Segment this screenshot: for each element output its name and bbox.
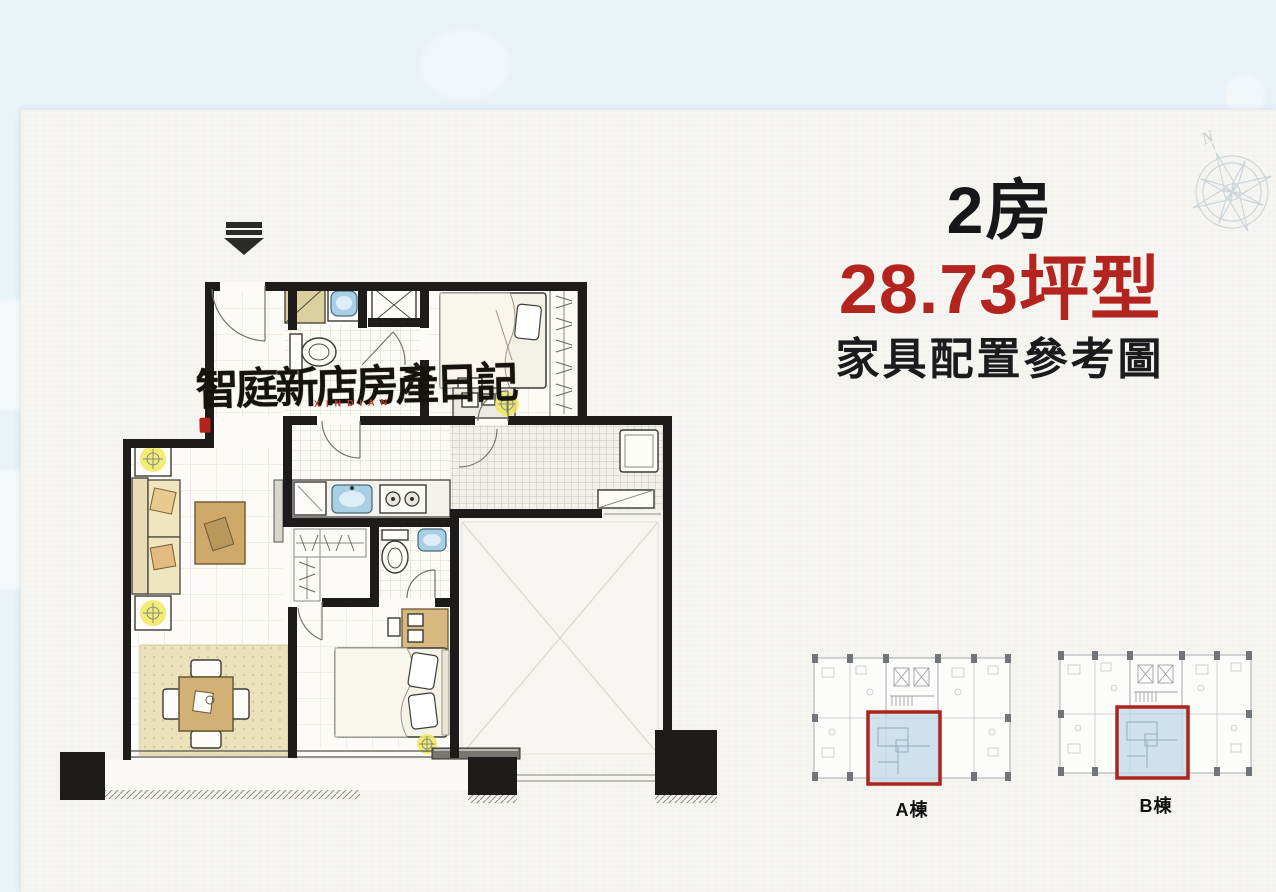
- dining-chair: [191, 731, 221, 748]
- column: [60, 752, 105, 800]
- dining-chair: [232, 689, 249, 719]
- key-plan-building-a: A棟: [806, 652, 1018, 822]
- subtitle: 家具配置參考圖: [780, 337, 1220, 383]
- compass-rose: N: [1186, 126, 1276, 252]
- desk-item: [408, 614, 423, 626]
- tv-console: [274, 480, 283, 542]
- highlighted-unit: [868, 712, 940, 784]
- watermark-seal-icon: [199, 418, 210, 433]
- pillow: [408, 693, 438, 730]
- washer: [620, 430, 658, 472]
- key-plan-b-label: B棟: [1050, 792, 1262, 818]
- balcony-hatch: [655, 795, 717, 803]
- page-decor-circle: [420, 30, 510, 100]
- key-plan-building-b: B棟: [1050, 650, 1262, 818]
- toilet-tank: [382, 530, 408, 540]
- watermark: 智庭新店房產日記 XINDIAN: [195, 348, 517, 456]
- highlighted-unit: [1117, 707, 1188, 778]
- kitchen-fixtures: [292, 480, 450, 517]
- desk-chair: [388, 618, 400, 636]
- room-count-title: 2房: [780, 176, 1220, 245]
- floor-plan: [60, 230, 740, 852]
- balcony-hatch: [468, 795, 517, 803]
- watermark-subtext: XINDIAN: [314, 397, 393, 409]
- area-title: 28.73坪型: [780, 253, 1220, 327]
- dining-chair: [163, 689, 180, 719]
- pillow: [408, 652, 439, 690]
- desk-item: [408, 630, 423, 642]
- title-block: 2房 28.73坪型 家具配置參考圖: [780, 176, 1220, 383]
- key-plan-a-label: A棟: [806, 796, 1018, 822]
- column: [655, 730, 717, 795]
- sofa-pillow: [150, 544, 175, 569]
- key-plan-b-drawing: [1058, 650, 1254, 784]
- pillow: [514, 304, 541, 340]
- entrance-arrow-icon: [222, 222, 266, 261]
- dining-table-setting: [193, 691, 214, 713]
- sofa-back: [132, 478, 148, 594]
- page-decor-circle: [1225, 75, 1265, 115]
- key-plan-a-drawing: [812, 652, 1012, 788]
- headboard: [442, 650, 449, 735]
- column: [468, 757, 517, 795]
- floor-plan-drawing: [60, 230, 740, 852]
- sofa-pillow: [150, 488, 176, 514]
- dining-area-furniture: [140, 645, 288, 755]
- compass-icon: [1186, 126, 1276, 252]
- dining-chair: [191, 660, 221, 677]
